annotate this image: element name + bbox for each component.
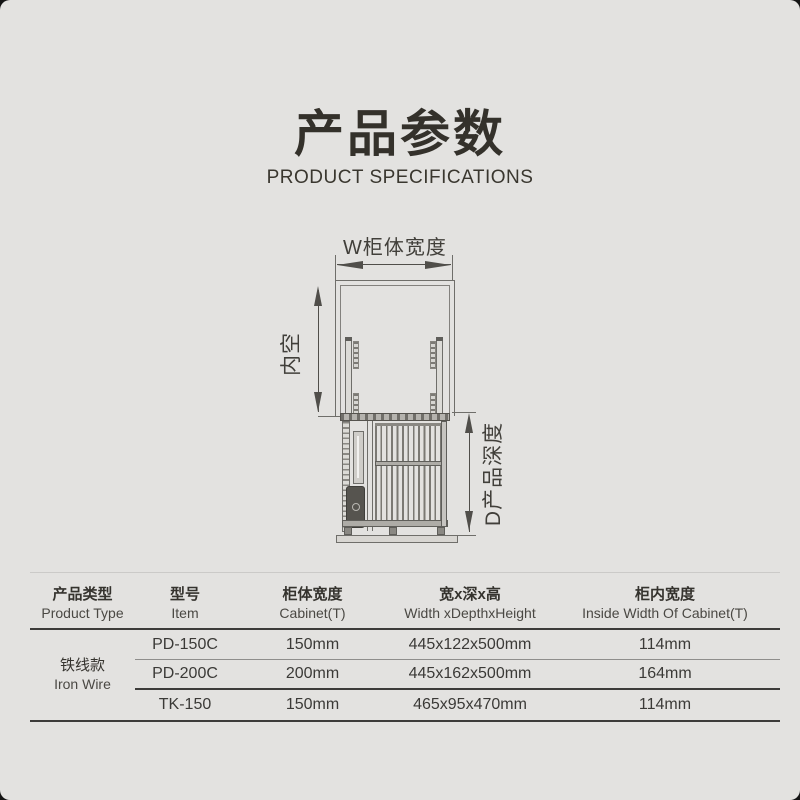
col-header-dimensions: 宽x深x高 Width xDepthxHeight — [390, 586, 550, 622]
basket-foot-left — [344, 527, 352, 535]
col-header-product-type: 产品类型 Product Type — [30, 586, 135, 622]
basket-container-knob-icon — [352, 503, 360, 511]
table-row-3-cabinet: 150mm — [235, 690, 390, 720]
inner-arrowhead-up-icon — [314, 286, 322, 306]
width-arrowhead-left-icon — [337, 261, 363, 269]
table-row-3-item: TK-150 — [135, 690, 235, 720]
depth-tick-top — [452, 412, 476, 413]
inner-space-label: 内空 — [269, 331, 311, 377]
col-header-inside-width: 柜内宽度 Inside Width Of Cabinet(T) — [550, 586, 780, 622]
slide-rail-right-cap — [436, 337, 443, 341]
width-tick-left — [335, 255, 336, 281]
slide-rail-left-bracket-top — [353, 341, 359, 369]
basket-base-plate — [336, 535, 458, 543]
table-row-1-cabinet: 150mm — [235, 630, 390, 660]
depth-arrowhead-down-icon — [465, 511, 473, 531]
width-arrowhead-right-icon — [425, 261, 451, 269]
basket-wires — [375, 423, 445, 527]
basket-wire-top-bar — [375, 423, 445, 426]
table-row-2-cabinet: 200mm — [235, 660, 390, 690]
table-row-2-item: PD-200C — [135, 660, 235, 690]
slide-rail-right — [436, 337, 443, 415]
inner-arrowhead-down-icon — [314, 392, 322, 412]
basket-bottom-bar — [342, 520, 448, 527]
page-title: 产品参数 — [0, 94, 800, 166]
slide-rail-left — [345, 337, 352, 415]
inner-tick-bottom — [318, 416, 340, 417]
cabinet-width-label: W柜体宽度 — [330, 231, 460, 260]
product-spec-sheet: 产品参数 PRODUCT SPECIFICATIONS W柜体宽度 内空 — [0, 0, 800, 800]
category-cell: 铁线款 Iron Wire — [30, 630, 135, 720]
basket-foot-center — [389, 527, 397, 535]
width-tick-right — [452, 255, 453, 281]
col-header-item: 型号 Item — [135, 586, 235, 622]
spec-table-header-row: 产品类型 Product Type 型号 Item 柜体宽度 Cabinet(T… — [30, 573, 780, 630]
depth-tick-bottom — [458, 535, 476, 536]
depth-arrowhead-up-icon — [465, 413, 473, 433]
spec-table-body: 铁线款 Iron Wire PD-150C 150mm 445x122x500m… — [30, 630, 780, 722]
page-subtitle: PRODUCT SPECIFICATIONS — [0, 167, 800, 189]
table-row-1-wdh: 445x122x500mm — [390, 630, 550, 660]
table-row-3-wdh: 465x95x470mm — [390, 690, 550, 720]
basket-top-rail — [340, 413, 450, 421]
slide-rail-right-bracket-top — [430, 341, 436, 369]
basket-damper-slot — [357, 436, 359, 478]
col-header-cabinet-width: 柜体宽度 Cabinet(T) — [235, 586, 390, 622]
table-row-3-inside: 114mm — [550, 690, 780, 720]
table-row-1-item: PD-150C — [135, 630, 235, 660]
basket-divider — [367, 421, 373, 531]
spec-table: 产品类型 Product Type 型号 Item 柜体宽度 Cabinet(T… — [30, 572, 780, 722]
product-depth-label: D产品深度 — [480, 414, 504, 534]
basket-mid-bar — [375, 461, 445, 466]
basket-foot-right — [437, 527, 445, 535]
table-row-1-inside: 114mm — [550, 630, 780, 660]
slide-rail-left-cap — [345, 337, 352, 341]
table-row-2-inside: 164mm — [550, 660, 780, 690]
basket-right-frame — [441, 421, 447, 527]
table-row-2-wdh: 445x162x500mm — [390, 660, 550, 690]
